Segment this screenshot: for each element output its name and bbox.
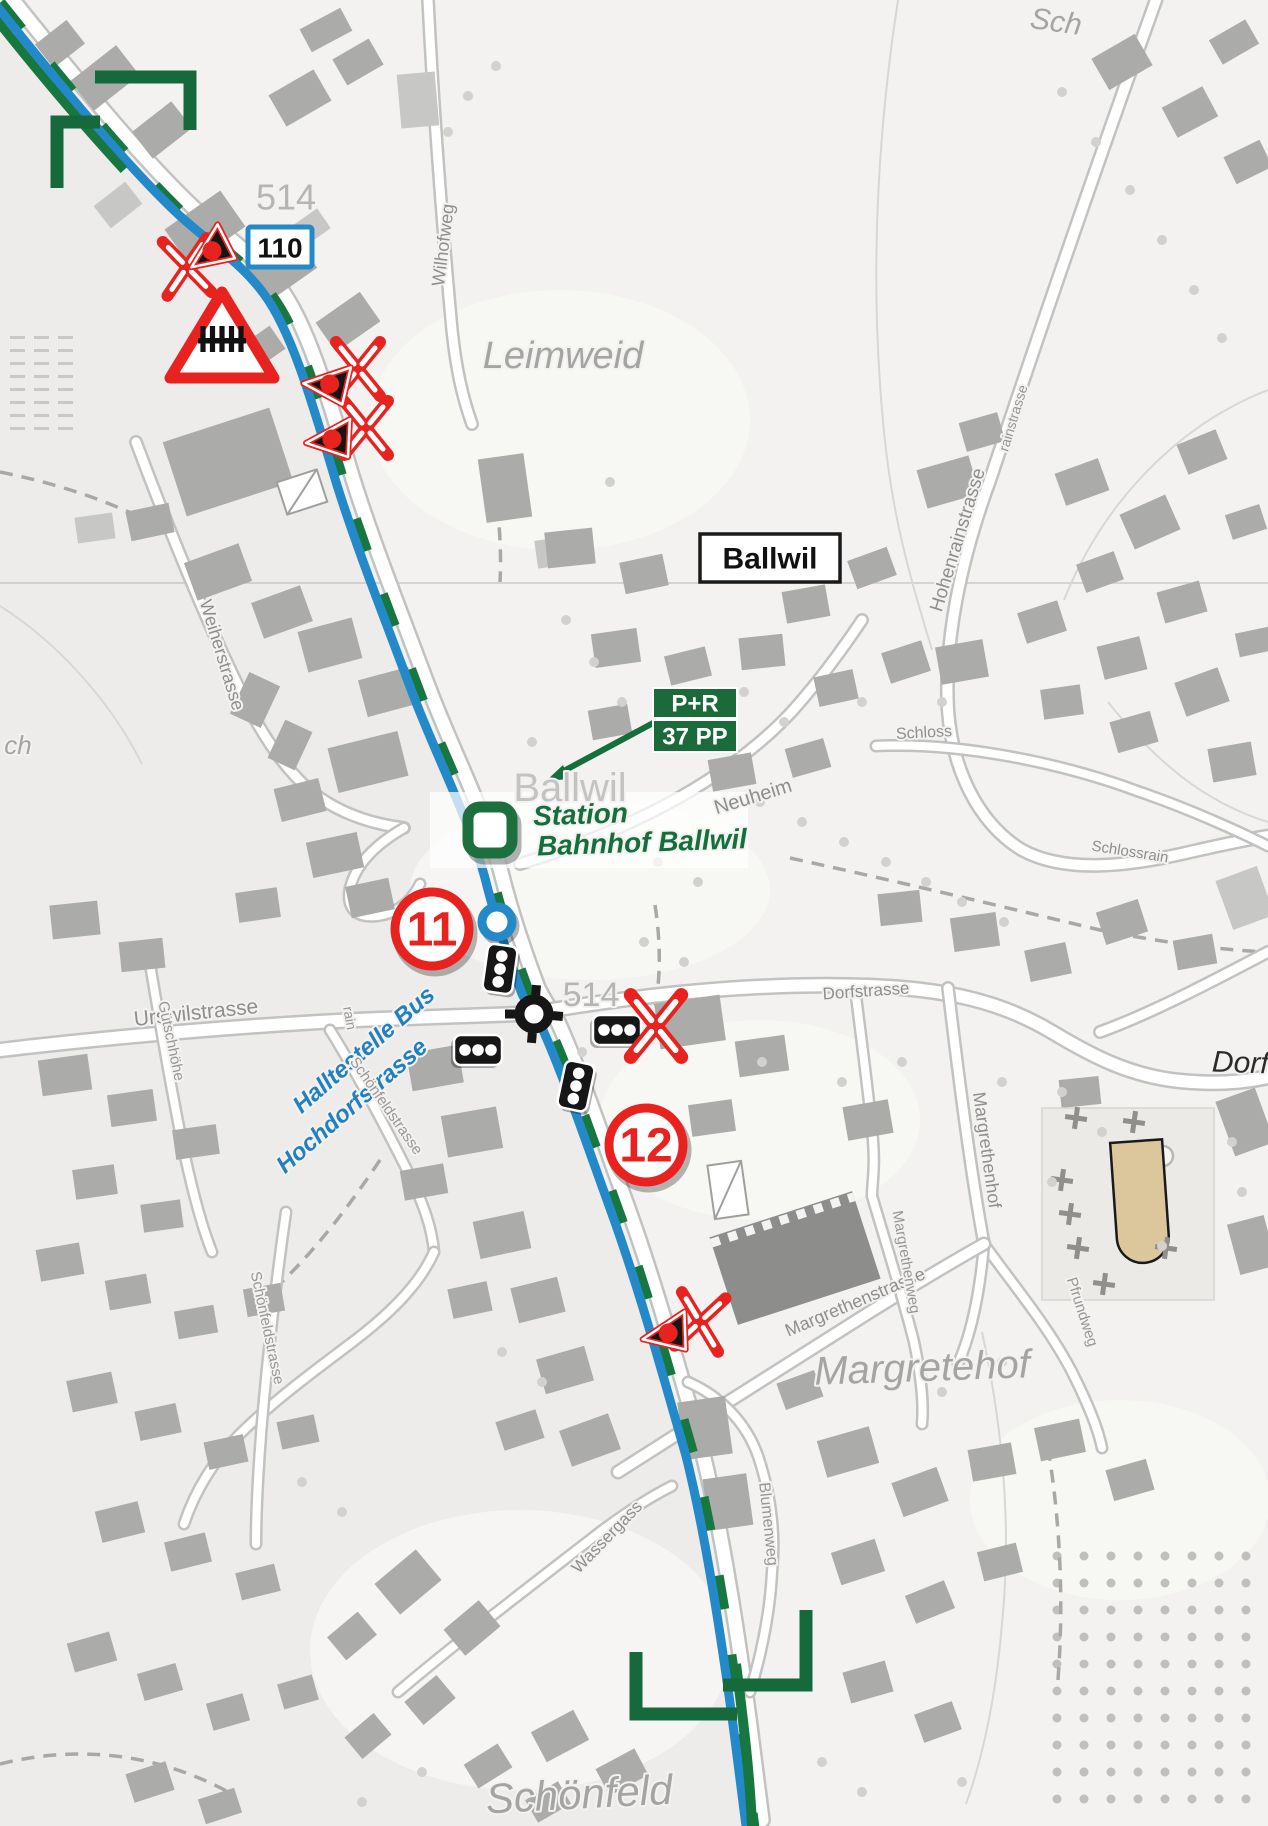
wetland-hatch	[58, 349, 73, 352]
wetland-hatch	[34, 336, 49, 339]
park-and-ride-sign: P+R37 PP	[653, 688, 737, 752]
orchard-dot	[1161, 1687, 1170, 1696]
tree-dot	[881, 857, 891, 867]
orchard-dot	[1188, 1633, 1197, 1642]
tree-dot	[605, 477, 615, 487]
tree-dot	[1097, 1127, 1107, 1137]
tree-dot	[337, 1507, 347, 1517]
wetland-hatch	[34, 388, 49, 391]
building	[140, 1199, 184, 1232]
cross-bar	[1102, 1273, 1105, 1295]
orchard-dot	[1242, 1633, 1251, 1642]
tree-dot	[617, 697, 627, 707]
orchard-dot	[1053, 1741, 1062, 1750]
building	[235, 887, 281, 923]
orchard-dot	[1188, 1768, 1197, 1777]
bus-stop-marker	[482, 907, 515, 941]
tree-dot	[1091, 137, 1101, 147]
signal-lamp	[323, 430, 342, 449]
orchard-dot	[1134, 1633, 1143, 1642]
building-footprint	[140, 1199, 184, 1232]
building	[688, 1099, 736, 1137]
orchard-dot	[1107, 1606, 1116, 1615]
tree-dot	[1237, 1187, 1247, 1197]
wetland-hatch	[10, 414, 25, 417]
fence-picket	[210, 326, 215, 352]
tree-dot	[797, 817, 807, 827]
building-footprint	[738, 634, 785, 670]
route-badge-number: 110	[257, 233, 302, 264]
cross-bar	[1060, 1169, 1063, 1191]
fence-picket	[229, 326, 234, 352]
wetland-hatch	[34, 349, 49, 352]
wetland-hatch	[10, 388, 25, 391]
traffic-light-lamp	[485, 1044, 497, 1056]
tree-dot	[779, 717, 789, 727]
building-footprint	[38, 1054, 93, 1097]
label-sch-nfeld: Schönfeld	[484, 1766, 675, 1823]
building-footprint	[688, 1099, 736, 1137]
wetland-hatch	[10, 375, 25, 378]
orchard-dot	[1161, 1768, 1170, 1777]
orchard-dot	[1242, 1795, 1251, 1804]
orchard-dot	[1215, 1795, 1224, 1804]
traffic-light-lamp	[472, 1044, 484, 1056]
orchard-dot	[1161, 1660, 1170, 1669]
cross-bar	[1068, 1203, 1071, 1225]
orchard-dot	[1053, 1660, 1062, 1669]
orchard-dot	[1107, 1741, 1116, 1750]
orchard-dot	[1161, 1741, 1170, 1750]
label-514: 514	[256, 177, 316, 218]
traffic-light-lamp	[459, 1044, 471, 1056]
orchard-dot	[1215, 1606, 1224, 1615]
orchard-dot	[1242, 1687, 1251, 1696]
orchard-dot	[1080, 1714, 1089, 1723]
wetland-hatch	[34, 427, 49, 430]
ballwil-project-map: P+R37 PP110Ballwil1112 514LeimweidWilhof…	[0, 0, 1268, 1826]
building	[172, 1124, 220, 1160]
building	[72, 1164, 118, 1200]
route-badge-110: 110	[248, 227, 312, 267]
traffic-light-icon	[481, 943, 521, 998]
tree-dot	[497, 1347, 507, 1357]
orchard-dot	[1188, 1552, 1197, 1561]
wetland-hatch	[10, 401, 25, 404]
tree-dot	[1047, 1177, 1057, 1187]
building	[738, 634, 785, 670]
building	[397, 71, 440, 128]
label-schloss: Schloss	[896, 723, 953, 743]
building-footprint	[172, 1124, 220, 1160]
wetland-hatch	[34, 375, 49, 378]
tree-dot	[589, 657, 599, 667]
tree-dot	[739, 687, 749, 697]
traffic-light-lamp	[624, 1024, 636, 1036]
orchard-dot	[1053, 1714, 1062, 1723]
orchard-dot	[1242, 1741, 1251, 1750]
roundabout-stub	[553, 1016, 563, 1017]
orchard-dot	[1080, 1552, 1089, 1561]
label-ch: ch	[4, 730, 31, 760]
field-patch	[370, 290, 750, 550]
orchard-dot	[1188, 1606, 1197, 1615]
pr-sign-line1: P+R	[671, 691, 718, 718]
tree-dot	[561, 615, 571, 625]
orchard-dot	[1242, 1606, 1251, 1615]
orchard-dot	[1107, 1768, 1116, 1777]
orchard-dot	[1215, 1633, 1224, 1642]
roundabout-stub	[536, 985, 537, 995]
map-canvas: P+R37 PP110Ballwil1112 514LeimweidWilhof…	[0, 0, 1268, 1826]
wetland-hatch	[10, 349, 25, 352]
orchard-dot	[1161, 1714, 1170, 1723]
tree-dot	[1227, 1137, 1237, 1147]
building-footprint	[735, 1035, 790, 1078]
bus-stop-ring	[482, 907, 512, 937]
point-badge-11: 11	[395, 892, 473, 972]
building-footprint	[1040, 684, 1084, 719]
tree-dot	[897, 1057, 907, 1067]
orchard-dot	[1134, 1579, 1143, 1588]
label-station: Station	[532, 797, 628, 831]
building	[38, 1054, 93, 1097]
building	[735, 1035, 790, 1078]
tree-dot	[957, 1777, 967, 1787]
building-footprint	[877, 890, 922, 926]
traffic-light-icon	[451, 1035, 502, 1068]
wetland-hatch	[58, 414, 73, 417]
tree-dot	[1157, 235, 1167, 245]
wetland-hatch	[58, 375, 73, 378]
orchard-dot	[1215, 1687, 1224, 1696]
building-footprint	[544, 528, 596, 569]
wetland-hatch	[34, 414, 49, 417]
orchard-dot	[1134, 1795, 1143, 1804]
wetland-hatch	[58, 336, 73, 339]
roundabout-stub	[531, 1033, 532, 1043]
tree-dot	[297, 1477, 307, 1487]
label-margretehof: Margretehof	[813, 1342, 1034, 1394]
orchard-dot	[1107, 1660, 1116, 1669]
building	[544, 528, 596, 569]
orchard-dot	[1188, 1660, 1197, 1669]
tree-dot	[527, 737, 537, 747]
orchard-dot	[1242, 1714, 1251, 1723]
orchard-dot	[1215, 1579, 1224, 1588]
building-footprint	[950, 912, 1000, 952]
orchard-dot	[1107, 1633, 1116, 1642]
tree-dot	[1217, 333, 1227, 343]
orchard-dot	[1161, 1795, 1170, 1804]
traffic-light-lamp	[598, 1024, 610, 1036]
label-leimweid: Leimweid	[483, 335, 645, 377]
orchard-dot	[1107, 1714, 1116, 1723]
building	[119, 938, 166, 972]
orchard-dot	[1161, 1552, 1170, 1561]
label-514: 514	[563, 976, 620, 1014]
wetland-hatch	[58, 401, 73, 404]
tree-dot	[1189, 285, 1199, 295]
orchard-dot	[1080, 1579, 1089, 1588]
station-marker	[468, 807, 516, 859]
tree-dot	[463, 91, 473, 101]
orchard-dot	[1134, 1660, 1143, 1669]
orchard-dot	[1215, 1660, 1224, 1669]
orchard-dot	[1134, 1606, 1143, 1615]
tree-dot	[693, 877, 703, 887]
town-box-label: Ballwil	[722, 543, 817, 576]
orchard-dot	[1107, 1579, 1116, 1588]
tree-dot	[679, 957, 689, 967]
orchard-dot	[1053, 1795, 1062, 1804]
orchard-dot	[1080, 1741, 1089, 1750]
building-footprint	[478, 453, 532, 523]
orchard-dot	[1080, 1768, 1089, 1777]
building	[49, 901, 100, 940]
pr-sign-line2: 37 PP	[662, 724, 727, 751]
orchard-dot	[1134, 1687, 1143, 1696]
orchard-dot	[1215, 1741, 1224, 1750]
tree-dot	[417, 1767, 427, 1777]
building-footprint	[107, 1089, 157, 1127]
tree-dot	[639, 937, 649, 947]
orchard-dot	[1188, 1579, 1197, 1588]
orchard-dot	[1242, 1579, 1251, 1588]
building	[107, 1089, 157, 1127]
tree-dot	[957, 897, 967, 907]
tree-dot	[577, 1047, 587, 1057]
fence-picket	[219, 326, 224, 352]
building-footprint	[49, 901, 100, 940]
point-badge-number: 11	[407, 904, 458, 957]
building-footprint	[235, 887, 281, 923]
tree-dot	[757, 1057, 767, 1067]
orchard-dot	[1215, 1768, 1224, 1777]
wetland-hatch	[10, 336, 25, 339]
building-footprint	[397, 71, 440, 128]
tree-dot	[839, 837, 849, 847]
wetland-hatch	[10, 362, 25, 365]
tree-dot	[1157, 1241, 1167, 1251]
orchard-dot	[1188, 1795, 1197, 1804]
building-footprint	[72, 1164, 118, 1200]
station-marker-box	[468, 807, 512, 853]
tree-dot	[1057, 87, 1067, 97]
building	[707, 1161, 748, 1219]
orchard-dot	[1215, 1714, 1224, 1723]
tree-dot	[857, 697, 867, 707]
orchard-dot	[1107, 1687, 1116, 1696]
orchard-dot	[1242, 1768, 1251, 1777]
traffic-light-lamp	[611, 1024, 623, 1036]
orchard-dot	[1188, 1741, 1197, 1750]
label-dorfstrasse: Dorfstrasse	[1211, 1046, 1268, 1084]
tree-dot	[999, 917, 1009, 927]
wetland-hatch	[34, 362, 49, 365]
building	[1040, 684, 1084, 719]
tree-dot	[857, 1787, 867, 1797]
fence-picket	[238, 326, 243, 352]
orchard-dot	[1053, 1687, 1062, 1696]
orchard-dot	[1134, 1768, 1143, 1777]
orchard-dot	[1242, 1552, 1251, 1561]
building	[478, 453, 532, 523]
tree-dot	[937, 697, 947, 707]
orchard-dot	[1188, 1687, 1197, 1696]
orchard-dot	[1080, 1687, 1089, 1696]
building	[950, 912, 1000, 952]
building-footprint	[74, 512, 115, 543]
orchard-dot	[1080, 1606, 1089, 1615]
tree-dot	[357, 1797, 367, 1807]
wetland-hatch	[58, 362, 73, 365]
orchard-dot	[1188, 1714, 1197, 1723]
tree-dot	[837, 1077, 847, 1087]
tree-dot	[443, 127, 453, 137]
building-footprint	[119, 938, 166, 972]
tree-dot	[1125, 185, 1135, 195]
orchard-dot	[1215, 1552, 1224, 1561]
orchard-dot	[1080, 1633, 1089, 1642]
town-box-ballwil: Ballwil	[700, 534, 840, 582]
wetland-hatch	[58, 427, 73, 430]
cross-bar	[1074, 1107, 1077, 1129]
orchard-dot	[1161, 1633, 1170, 1642]
orchard-dot	[1053, 1768, 1062, 1777]
cross-bar	[1076, 1237, 1079, 1259]
building	[74, 512, 115, 543]
orchard-dot	[1107, 1552, 1116, 1561]
cross-bar	[1132, 1111, 1135, 1133]
tree-dot	[997, 1077, 1007, 1087]
tree-dot	[491, 61, 501, 71]
orchard-dot	[1161, 1579, 1170, 1588]
tree-dot	[1057, 1087, 1067, 1097]
orchard-dot	[1134, 1741, 1143, 1750]
wetland-hatch	[58, 388, 73, 391]
orchard-dot	[1107, 1795, 1116, 1804]
building	[877, 890, 922, 926]
point-badge-12: 12	[609, 1108, 687, 1188]
wetland-hatch	[34, 401, 49, 404]
orchard-dot	[1242, 1660, 1251, 1669]
tree-dot	[537, 1377, 547, 1387]
orchard-dot	[1080, 1660, 1089, 1669]
tree-dot	[921, 877, 931, 887]
orchard-dot	[1161, 1606, 1170, 1615]
point-badge-number: 12	[619, 1120, 672, 1173]
orchard-dot	[1080, 1795, 1089, 1804]
roundabout-ring	[520, 1000, 549, 1029]
tree-dot	[817, 1757, 827, 1767]
wetland-hatch	[10, 427, 25, 430]
orchard-dot	[1134, 1552, 1143, 1561]
fence-picket	[200, 326, 205, 352]
orchard-dot	[1134, 1714, 1143, 1723]
